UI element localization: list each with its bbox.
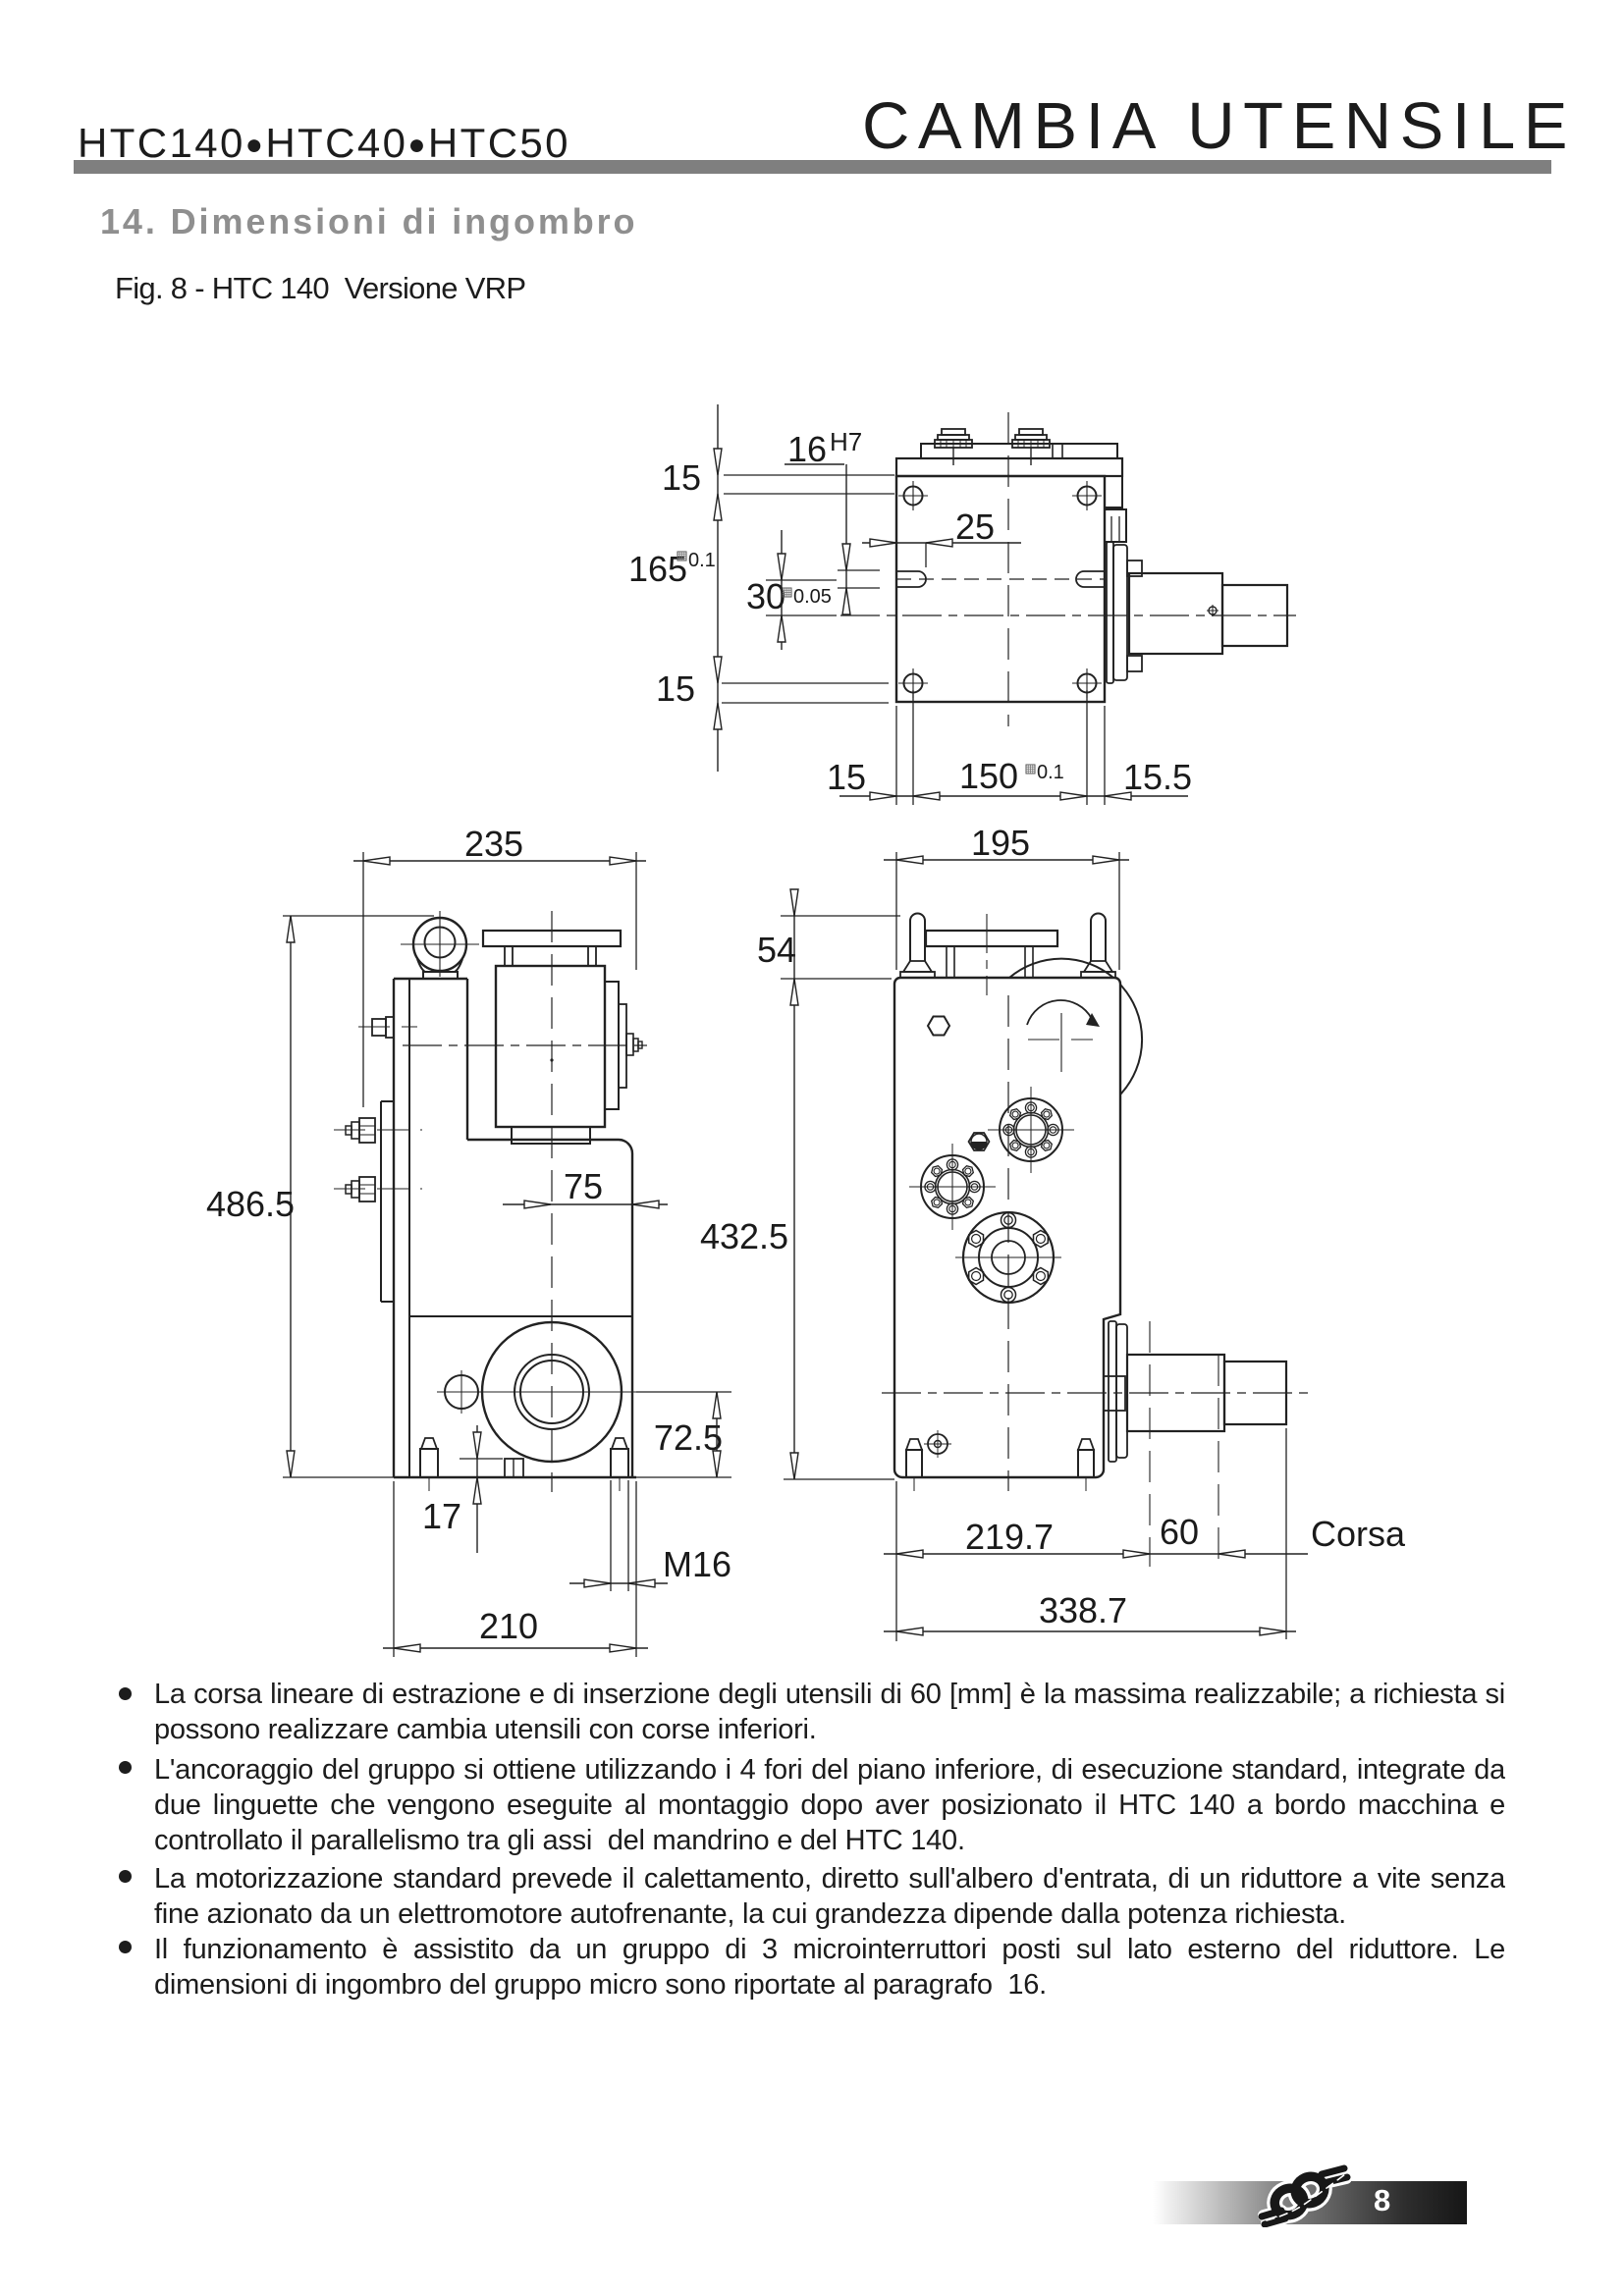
svg-text:165: 165 xyxy=(628,549,687,589)
svg-text:0.05: 0.05 xyxy=(793,586,832,608)
svg-text:25: 25 xyxy=(955,507,995,547)
svg-text:432.5: 432.5 xyxy=(700,1216,788,1256)
svg-text:M16: M16 xyxy=(663,1544,731,1584)
svg-text:486.5: 486.5 xyxy=(206,1184,295,1224)
svg-text:16: 16 xyxy=(787,429,827,469)
svg-text:Corsa: Corsa xyxy=(1311,1514,1406,1554)
svg-text:0.1: 0.1 xyxy=(1037,762,1064,783)
svg-text:H7: H7 xyxy=(830,427,862,456)
svg-text:0.1: 0.1 xyxy=(688,550,716,571)
svg-text:15.5: 15.5 xyxy=(1123,757,1192,797)
svg-text:60: 60 xyxy=(1160,1512,1199,1552)
svg-text:30: 30 xyxy=(746,576,785,616)
svg-text:15: 15 xyxy=(662,457,701,498)
svg-text:338.7: 338.7 xyxy=(1039,1590,1127,1630)
svg-text:150: 150 xyxy=(959,756,1018,796)
svg-text:15: 15 xyxy=(827,757,866,797)
svg-text:54: 54 xyxy=(757,930,796,970)
svg-text:15: 15 xyxy=(656,668,695,709)
svg-text:235: 235 xyxy=(464,824,523,864)
svg-text:75: 75 xyxy=(564,1166,603,1206)
svg-text:219.7: 219.7 xyxy=(965,1517,1054,1557)
svg-text:210: 210 xyxy=(479,1606,538,1646)
svg-text:17: 17 xyxy=(422,1496,461,1536)
svg-text:195: 195 xyxy=(971,823,1030,863)
